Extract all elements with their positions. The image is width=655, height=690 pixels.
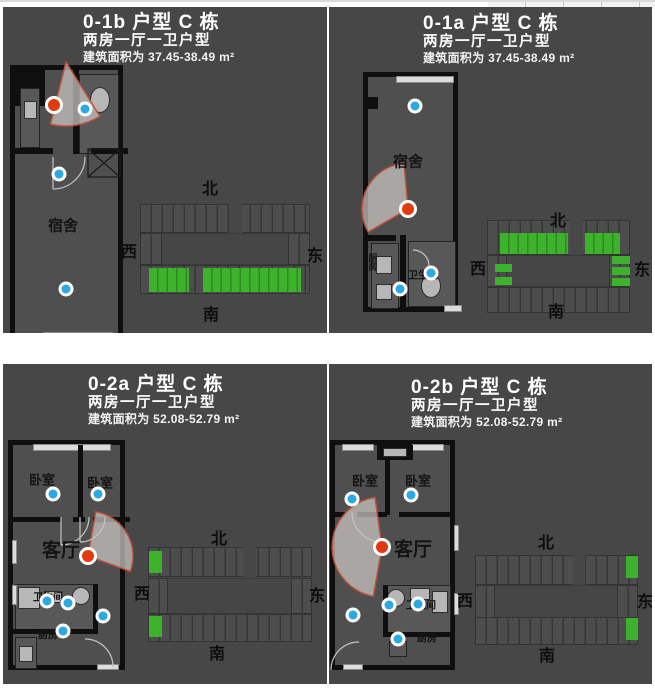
- sensor-dot: [61, 596, 76, 611]
- compass-west: 西: [134, 580, 150, 604]
- window: [396, 76, 454, 83]
- site-plan-north-wing: [140, 204, 310, 233]
- unit-title: 0-1b 户型 C 栋: [83, 12, 234, 33]
- sensor-dot: [393, 282, 408, 297]
- stove: [376, 284, 392, 300]
- room-label-bedroom: 卧室: [352, 471, 378, 490]
- compass-south: 南: [548, 298, 564, 322]
- wall: [357, 512, 387, 517]
- unit-area: 建筑面积为 37.45-38.49 m²: [423, 51, 574, 66]
- unit-area: 建筑面积为 37.45-38.49 m²: [83, 50, 234, 65]
- floorplan-sheet: 0-1b 户型 C 栋 两房一厅一卫户型 建筑面积为 37.45-38.49 m…: [0, 0, 655, 690]
- niche: [383, 448, 407, 457]
- panel-header: 0-2a 户型 C 栋 两房一厅一卫户型 建筑面积为 52.08-52.79 m…: [88, 374, 239, 427]
- compass-north: 北: [550, 207, 566, 231]
- wall: [400, 235, 406, 311]
- site-plan-core: [163, 578, 297, 614]
- panel-0-2a: 0-2a 户型 C 栋 两房一厅一卫户型 建筑面积为 52.08-52.79 m…: [3, 364, 327, 684]
- compass-east: 东: [637, 588, 652, 612]
- panel-0-2b: 0-2b 户型 C 栋 两房一厅一卫户型 建筑面积为 52.08-52.79 m…: [329, 364, 652, 684]
- sensor-dot: [96, 609, 111, 624]
- panel-0-1b: 0-1b 户型 C 栋 两房一厅一卫户型 建筑面积为 37.45-38.49 m…: [3, 7, 327, 333]
- wall-block: [368, 97, 378, 109]
- camera-dot: [399, 200, 417, 218]
- unit-title: 0-2b 户型 C 栋: [411, 377, 562, 398]
- site-plan-north-wing: [148, 547, 312, 577]
- door-opening: [97, 664, 119, 670]
- wall: [15, 148, 53, 154]
- window: [342, 444, 374, 451]
- sensor-dot: [411, 597, 426, 612]
- wall: [13, 517, 61, 522]
- unit-subtitle: 两房一厅一卫户型: [88, 395, 239, 412]
- highlighted-units: [149, 616, 162, 637]
- wall: [93, 517, 130, 522]
- panel-0-1a: 0-1a 户型 C 栋 两房一厅一卫户型 建筑面积为 37.45-38.49 m…: [329, 7, 652, 333]
- camera-dot: [45, 96, 63, 114]
- sensor-dot: [46, 487, 61, 502]
- site-plan-west-end: [140, 233, 162, 265]
- highlighted-units: [585, 233, 620, 254]
- camera-dot: [79, 547, 97, 565]
- compass-south: 南: [203, 301, 219, 325]
- site-plan-core: [489, 585, 623, 621]
- site-plan-gap: [243, 547, 256, 577]
- sensor-dot: [404, 488, 419, 503]
- compass-west: 西: [121, 238, 137, 262]
- wall: [78, 445, 83, 517]
- highlighted-units: [149, 551, 162, 573]
- toilet: [90, 87, 110, 113]
- site-plan-core: [155, 233, 295, 265]
- panel-header: 0-2b 户型 C 栋 两房一厅一卫户型 建筑面积为 52.08-52.79 m…: [411, 377, 562, 430]
- wall: [385, 460, 390, 515]
- sensor-dot: [424, 266, 439, 281]
- compass-east: 东: [634, 256, 650, 280]
- site-plan-gap: [570, 220, 583, 255]
- site-plan-core: [499, 255, 619, 287]
- wall: [335, 512, 345, 517]
- compass-south: 南: [209, 640, 225, 664]
- room-label-living: 客厅: [42, 536, 80, 563]
- panel-header: 0-1a 户型 C 栋 两房一厅一卫户型 建筑面积为 37.45-38.49 m…: [423, 13, 574, 66]
- unit-subtitle: 两房一厅一卫户型: [83, 33, 234, 50]
- sensor-dot: [56, 624, 71, 639]
- highlighted-units: [626, 556, 638, 578]
- wall: [91, 148, 128, 154]
- sensor-dot: [382, 598, 397, 613]
- window: [454, 525, 459, 551]
- site-plan-west-end: [475, 585, 495, 621]
- sensor-dot: [78, 102, 93, 117]
- highlighted-units: [612, 256, 630, 264]
- highlighted-units: [495, 264, 512, 272]
- compass-east: 东: [309, 582, 325, 606]
- sensor-dot: [408, 99, 423, 114]
- site-plan-south-wing: [475, 617, 638, 645]
- unit-title: 0-1a 户型 C 栋: [423, 13, 574, 34]
- camera-dot: [373, 538, 391, 556]
- site-plan-west-end: [148, 578, 168, 614]
- room-label-main: 宿舍: [393, 151, 423, 172]
- sensor-dot: [91, 487, 106, 502]
- site-plan-south-wing: [148, 614, 312, 642]
- highlighted-units: [626, 618, 638, 640]
- window: [33, 444, 111, 451]
- highlighted-units: [203, 268, 301, 292]
- highlighted-units: [612, 278, 630, 286]
- highlighted-units: [612, 267, 630, 275]
- wall: [73, 517, 85, 522]
- unit-area: 建筑面积为 52.08-52.79 m²: [411, 415, 562, 430]
- window: [12, 540, 17, 564]
- site-plan-east-end: [617, 585, 638, 621]
- panel-header: 0-1b 户型 C 栋 两房一厅一卫户型 建筑面积为 37.45-38.49 m…: [83, 12, 234, 65]
- kitchen-counter: [15, 637, 37, 669]
- window: [43, 332, 113, 333]
- room-label-main: 宿舍: [48, 215, 78, 236]
- sink: [24, 101, 37, 119]
- sensor-dot: [345, 492, 360, 507]
- compass-south: 南: [539, 642, 555, 666]
- sensor-dot: [346, 608, 361, 623]
- compass-north: 北: [202, 175, 218, 199]
- room-label-kitchen: 厨房: [366, 253, 379, 271]
- window: [12, 585, 17, 605]
- highlighted-units: [500, 233, 568, 254]
- site-plan-gap: [573, 555, 585, 585]
- wall: [399, 512, 452, 517]
- unit-area: 建筑面积为 52.08-52.79 m²: [88, 412, 239, 427]
- unit-subtitle: 两房一厅一卫户型: [411, 398, 562, 415]
- unit-subtitle: 两房一厅一卫户型: [423, 34, 574, 51]
- compass-north: 北: [538, 529, 554, 553]
- room-label-living: 客厅: [394, 535, 432, 562]
- sensor-dot: [59, 282, 74, 297]
- highlighted-units: [149, 268, 189, 292]
- sensor-dot: [52, 167, 67, 182]
- door-opening: [444, 305, 462, 312]
- compass-west: 西: [457, 587, 473, 611]
- door-opening: [343, 664, 363, 670]
- compass-north: 北: [211, 525, 227, 549]
- sink: [19, 646, 33, 662]
- unit-title: 0-2a 户型 C 栋: [88, 374, 239, 395]
- wall: [93, 584, 98, 634]
- compass-west: 西: [470, 255, 486, 279]
- wall: [368, 235, 396, 241]
- compass-east: 东: [307, 242, 323, 266]
- kitchen-counter: [20, 88, 40, 148]
- sensor-dot: [391, 632, 406, 647]
- window: [412, 444, 444, 451]
- highlighted-units: [495, 277, 512, 285]
- sensor-dot: [40, 594, 55, 609]
- site-plan-north-wing: [475, 555, 638, 585]
- room-label-kitchen: 厨房: [417, 630, 437, 645]
- site-plan-gap: [229, 204, 242, 233]
